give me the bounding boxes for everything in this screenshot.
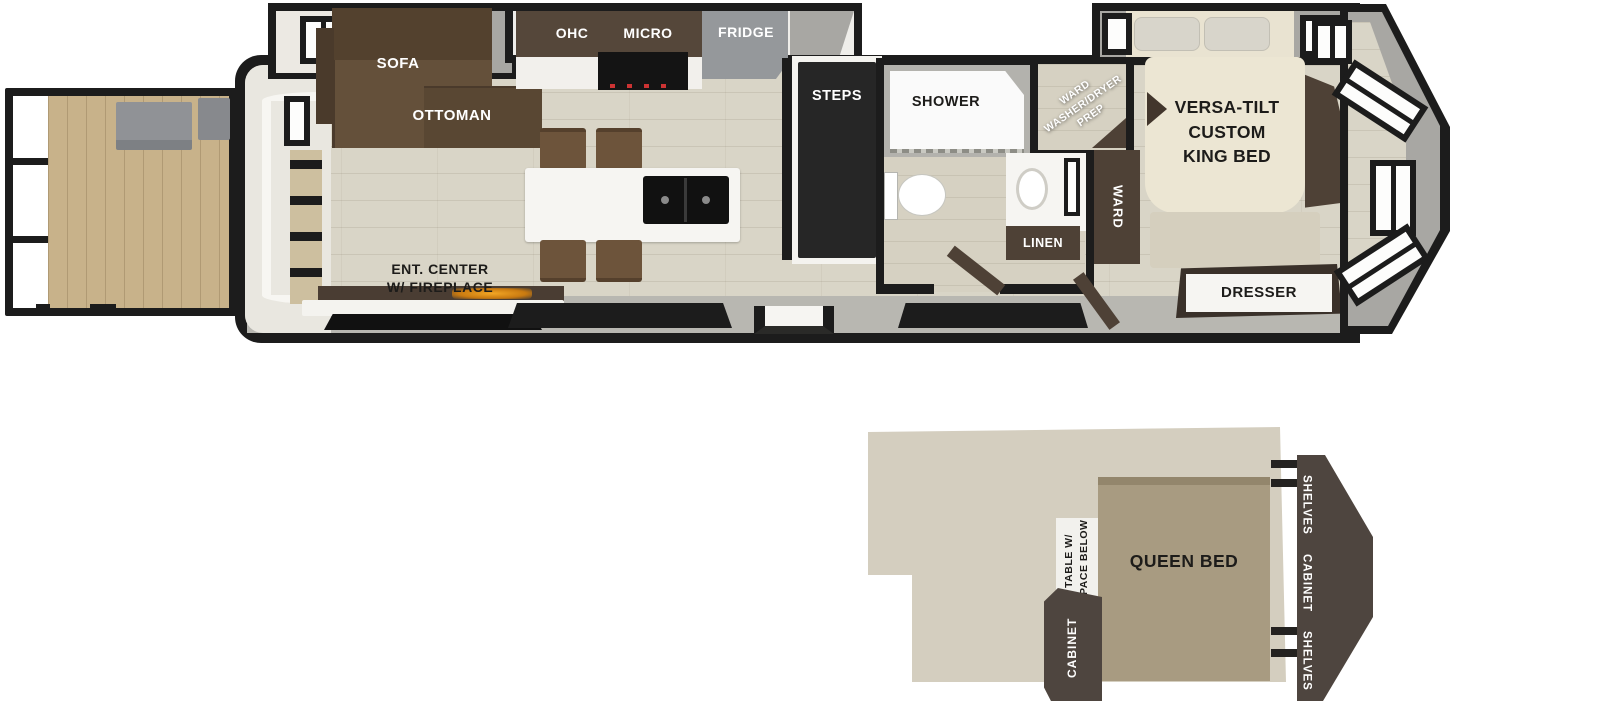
sofa-label: SOFA: [358, 52, 438, 76]
deck-bench: [116, 102, 192, 150]
loft-shelf-bar: [1271, 479, 1297, 487]
toilet-bowl: [898, 174, 946, 216]
loft-queen-bed: [1098, 477, 1270, 681]
bed-pillow: [1204, 17, 1270, 51]
window-pane: [1335, 26, 1347, 58]
ottoman-label: OTTOMAN: [400, 104, 504, 128]
king-bed-label: VERSA-TILT CUSTOM KING BED: [1137, 92, 1317, 172]
bed-foot-bench: [1150, 212, 1320, 268]
steps-label: STEPS: [798, 84, 876, 108]
shower-label: SHOWER: [896, 90, 996, 114]
entry-door: [754, 306, 834, 334]
toilet-tank: [884, 172, 898, 220]
deck-rail-bar: [13, 158, 48, 165]
sofa-arm: [316, 28, 334, 124]
bed-pillow: [1134, 17, 1200, 51]
deck-step-tab: [90, 304, 116, 313]
entry-steps: [290, 150, 322, 304]
loft-shelf-bar: [1271, 627, 1297, 635]
queen-bed-label: QUEEN BED: [1098, 548, 1270, 574]
steps-wall: [782, 58, 792, 260]
bedroom-window-left: [1102, 13, 1132, 55]
bedroom-wall: [1086, 152, 1094, 292]
dinette-chair: [540, 128, 586, 170]
deck-rail-bar: [13, 236, 48, 243]
dresser-label: DRESSER: [1186, 281, 1332, 305]
loft-shelf-bar: [1271, 649, 1297, 657]
dinette-chair: [596, 240, 642, 282]
loft-shelves-top-label: SHELVES: [1296, 455, 1316, 555]
entry-step-rung: [290, 268, 322, 277]
bath-left-wall: [876, 58, 884, 294]
shower-glass: [890, 149, 1024, 153]
entry-window: [284, 96, 310, 146]
ent-center-label: ENT. CENTER W/ FIREPLACE: [350, 258, 530, 298]
loft-shelf-bar: [1271, 460, 1297, 468]
window-pane: [1068, 162, 1076, 212]
sink-divider: [684, 178, 687, 222]
wardrobe-label: WARD: [1104, 160, 1130, 254]
fridge-label: FRIDGE: [706, 21, 786, 43]
window-pane: [1396, 166, 1411, 230]
window-pane: [1318, 26, 1330, 58]
dinette-chair: [540, 240, 586, 282]
ohc-label: OHC: [540, 22, 604, 44]
loft-cabinet-left-label: CABINET: [1060, 600, 1086, 696]
vanity-mirror: [1064, 158, 1080, 216]
window-pane: [1108, 19, 1126, 49]
dinette-chair: [596, 128, 642, 170]
sink-drain: [702, 196, 710, 204]
bath-bottom-window: [898, 303, 1088, 328]
vanity-sink: [1016, 168, 1048, 210]
entry-step-rung: [290, 196, 322, 205]
linen-label: LINEN: [1006, 231, 1080, 255]
loft-shelves-bottom-label: SHELVES: [1296, 621, 1316, 701]
living-bottom-window: [508, 303, 732, 328]
cap-window-right: [1370, 160, 1416, 236]
deck-step-tab: [36, 304, 50, 313]
window-pane: [290, 102, 304, 140]
sink-drain: [661, 196, 669, 204]
micro-label: MICRO: [612, 22, 684, 44]
range-knobs: [610, 84, 676, 88]
cap-window-top: [1312, 20, 1352, 64]
loft-cabinet-right-label: CABINET: [1296, 545, 1316, 621]
entry-step-rung: [290, 232, 322, 241]
window-pane: [1376, 166, 1391, 230]
entry-step-rung: [290, 160, 322, 169]
deck-bench-side: [198, 98, 230, 140]
floorplan-canvas: SOFA OTTOMAN ENT. CENTER W/ FIREPLACE OH…: [0, 0, 1600, 701]
bath-bottom-wall: [876, 284, 934, 294]
